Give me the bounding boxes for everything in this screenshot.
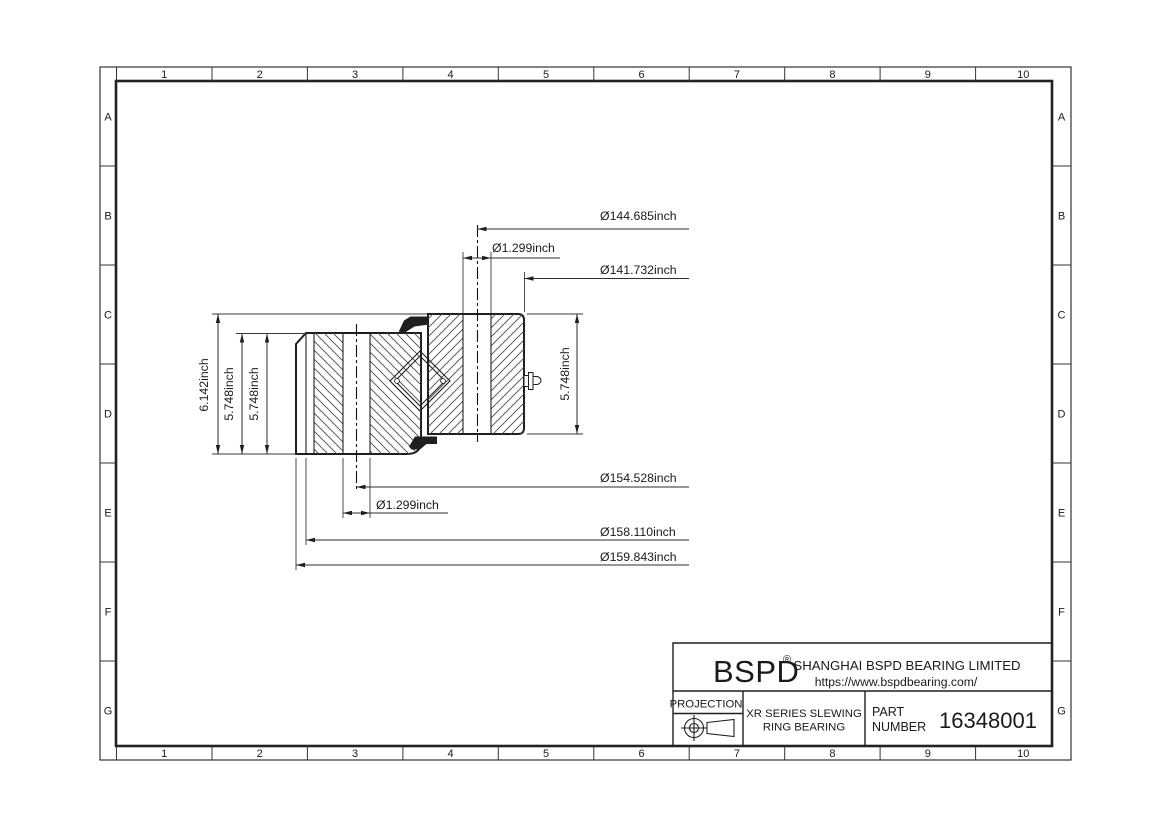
projection-cell: PROJECTION bbox=[670, 699, 743, 742]
bearing-cross-section bbox=[296, 225, 541, 492]
dim-bolt-circle-outer: Ø154.528inch bbox=[600, 471, 677, 485]
dim-inner-ring-height: 5.748inch bbox=[558, 347, 572, 400]
grid-col-label: 7 bbox=[734, 748, 740, 760]
dim-bolt-hole-outer: Ø1.299inch bbox=[376, 498, 439, 512]
roller-pin-right bbox=[441, 379, 446, 384]
registered-mark: ® bbox=[783, 654, 791, 666]
engineering-drawing: 1 2 3 4 5 6 7 8 9 10 1 2 3 4 5 6 7 8 9 1… bbox=[0, 0, 1170, 827]
grid-col-label: 8 bbox=[829, 69, 835, 81]
grid-col-label: 2 bbox=[257, 69, 263, 81]
dim-od-step: Ø158.110inch bbox=[600, 525, 676, 539]
grid-row-label: E bbox=[1058, 508, 1065, 520]
grid-col-label: 3 bbox=[352, 748, 358, 760]
grid-row-label: G bbox=[1057, 706, 1066, 718]
drawing-sheet: 1 2 3 4 5 6 7 8 9 10 1 2 3 4 5 6 7 8 9 1… bbox=[0, 0, 1170, 827]
grid-row-label: D bbox=[1058, 409, 1066, 421]
dim-od: Ø159.843inch bbox=[600, 550, 677, 564]
grid-ruler-ticks bbox=[100, 67, 1071, 760]
grid-col-label: 2 bbox=[257, 748, 263, 760]
title-block: BSPD ® SHANGHAI BSPD BEARING LIMITED htt… bbox=[670, 643, 1052, 746]
grid-row-label: C bbox=[104, 310, 112, 322]
projection-label: PROJECTION bbox=[670, 699, 743, 711]
part-number-value: 16348001 bbox=[939, 708, 1037, 733]
dim-bore: Ø141.732inch bbox=[600, 263, 677, 277]
grid-col-label: 4 bbox=[448, 69, 454, 81]
grid-col-label: 5 bbox=[543, 69, 549, 81]
part-number-cell: PART NUMBER 16348001 bbox=[872, 705, 1037, 734]
grid-row-label: E bbox=[104, 508, 111, 520]
seal-top bbox=[399, 317, 429, 334]
grid-row-label: B bbox=[1058, 211, 1065, 223]
dim-outer-ring-height: 5.748inch bbox=[222, 367, 236, 420]
dim-outer-ring-height-2: 5.748inch bbox=[247, 367, 261, 420]
brand-logo: BSPD ® bbox=[713, 654, 799, 689]
dim-bolt-circle-inner: Ø144.685inch bbox=[600, 209, 677, 223]
product-name-line1: XR SERIES SLEWING bbox=[746, 708, 862, 720]
company-website: https://www.bspdbearing.com/ bbox=[815, 675, 978, 689]
product-name-line2: RING BEARING bbox=[763, 722, 845, 734]
grid-row-label: A bbox=[1058, 112, 1066, 124]
grid-row-label: A bbox=[104, 112, 112, 124]
product-cell: XR SERIES SLEWING RING BEARING bbox=[746, 708, 862, 734]
grid-row-label: F bbox=[1058, 607, 1065, 619]
roller-pin-left bbox=[395, 379, 400, 384]
grease-fitting bbox=[524, 373, 541, 390]
part-label-line2: NUMBER bbox=[872, 720, 926, 734]
part-label-line1: PART bbox=[872, 705, 905, 719]
grid-row-label: D bbox=[104, 409, 112, 421]
grid-col-label: 8 bbox=[829, 748, 835, 760]
dim-total-height: 6.142inch bbox=[197, 358, 211, 411]
grid-row-label: C bbox=[1058, 310, 1066, 322]
grid-col-label: 3 bbox=[352, 69, 358, 81]
grid-row-label: B bbox=[104, 211, 111, 223]
grid-col-label: 6 bbox=[638, 69, 644, 81]
grid-col-label: 7 bbox=[734, 69, 740, 81]
grid-col-label: 5 bbox=[543, 748, 549, 760]
grid-col-label: 1 bbox=[161, 69, 167, 81]
company-name: SHANGHAI BSPD BEARING LIMITED bbox=[793, 658, 1020, 673]
grid-col-label: 10 bbox=[1017, 69, 1029, 81]
grid-col-label: 6 bbox=[638, 748, 644, 760]
sheet-border bbox=[100, 67, 1071, 760]
grid-col-label: 9 bbox=[925, 69, 931, 81]
grid-row-label: F bbox=[105, 607, 112, 619]
dim-bolt-hole-inner: Ø1.299inch bbox=[492, 241, 555, 255]
grid-col-label: 10 bbox=[1017, 748, 1029, 760]
grid-row-label: G bbox=[104, 706, 113, 718]
grid-col-label: 1 bbox=[161, 748, 167, 760]
grid-col-label: 9 bbox=[925, 748, 931, 760]
first-angle-projection-icon bbox=[681, 715, 734, 741]
grid-col-label: 4 bbox=[448, 748, 454, 760]
